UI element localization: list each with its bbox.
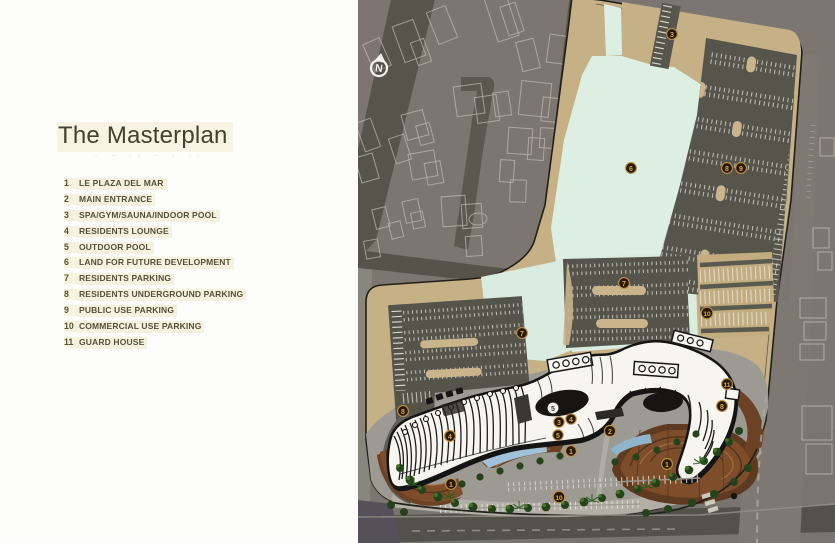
svg-text:2: 2: [608, 429, 612, 436]
svg-text:8: 8: [725, 166, 729, 173]
svg-text:5: 5: [556, 433, 560, 440]
svg-text:10: 10: [703, 311, 711, 318]
svg-text:4: 4: [569, 417, 573, 424]
svg-text:10: 10: [555, 495, 563, 502]
svg-text:7: 7: [622, 281, 626, 288]
svg-text:1: 1: [449, 482, 453, 489]
svg-text:1: 1: [569, 449, 573, 456]
svg-text:7: 7: [520, 331, 524, 338]
svg-text:5: 5: [551, 406, 555, 413]
svg-text:3: 3: [557, 420, 561, 427]
svg-text:8: 8: [720, 404, 724, 411]
svg-text:11: 11: [724, 382, 731, 389]
svg-text:6: 6: [629, 166, 633, 173]
svg-text:1: 1: [665, 462, 669, 469]
svg-text:8: 8: [401, 409, 405, 416]
svg-text:3: 3: [670, 32, 674, 39]
svg-text:4: 4: [448, 434, 452, 441]
svg-text:9: 9: [739, 166, 743, 173]
